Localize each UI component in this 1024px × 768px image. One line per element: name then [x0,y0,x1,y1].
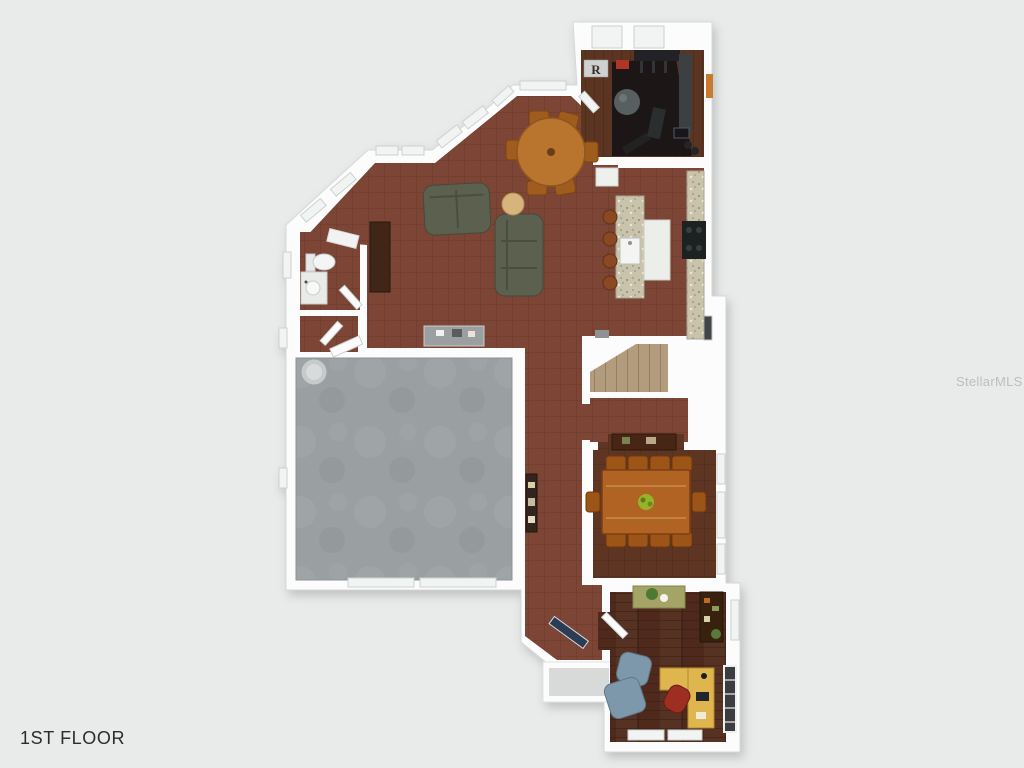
rack-bar-2 [652,61,655,73]
dining-chair-left [586,492,600,512]
loveseat [423,182,492,235]
office-bottom-window-1 [628,730,664,740]
sofa-body [495,214,543,296]
water-heater-top [306,364,322,380]
console-item-2 [452,329,462,337]
stove [682,221,706,259]
weight-rack [634,50,680,61]
office-table-plant [646,588,658,600]
round-side-table [502,193,524,215]
office-side-window [731,600,739,640]
gym-tv [674,128,689,138]
exercise-ball-highlight [619,94,627,102]
office-table-vase [660,594,668,602]
console-item-1 [436,330,444,336]
buffet-item-1 [622,437,630,444]
sofa [495,214,543,296]
garage-wall-pilaster-2 [279,468,287,488]
dining-chair-right [692,492,706,512]
red-equipment [616,60,629,69]
gym-sign-letter: R [591,62,601,77]
stair-closet-window [704,316,712,340]
desk-papers [696,712,706,719]
kettlebell-2 [691,147,699,155]
hall-console-item-1 [528,482,535,488]
desk-lamp [701,673,707,679]
vanity-sink [306,281,320,295]
sink-faucet [628,241,632,245]
cable-machine [679,54,692,134]
bookshelf-item-2 [712,606,719,611]
garage [301,359,327,385]
bar-stool-2 [603,232,617,246]
burner-1 [686,227,692,233]
bookshelf-item-1 [704,598,710,603]
garage-floor [296,358,512,580]
console-item-3 [468,331,475,337]
living-window-2 [402,146,424,155]
exercise-ball [614,89,640,115]
dining-chair-top-4 [672,456,692,471]
buffet-item-2 [646,437,656,444]
dining-window-3 [717,544,725,574]
gym-window-left [592,26,622,48]
burner-3 [686,245,692,251]
office-side-table [633,586,685,608]
building: R [279,22,740,752]
watermark: StellarMLS [956,374,1023,389]
centerpiece-leaf-1 [641,498,646,503]
hallway [526,474,537,532]
hall-connector [578,404,594,440]
nook-chair-4 [584,142,598,162]
vanity-faucet [305,281,308,284]
living-window-1 [376,146,398,155]
hall-console-item-2 [528,498,535,506]
rack-bar-3 [664,61,667,73]
garage-door-opening-2 [420,578,496,587]
bookshelf-item-3 [704,616,710,622]
stair-landing-item [595,330,609,338]
bar-stool-4 [603,276,617,290]
gym-window-right [634,26,664,48]
tv-console [370,222,390,292]
powder-window [283,252,291,278]
office-bottom-window-2 [668,730,702,740]
kitchen-cabinet-top [596,168,618,186]
garage-door-opening-1 [348,578,414,587]
dining-chair-top-3 [650,456,670,471]
dining-chair-top-1 [606,456,626,471]
kettlebell-1 [684,141,692,149]
bar-stool-3 [603,254,617,268]
dining-chair-top-2 [628,456,648,471]
floor-plan-page: R [0,0,1024,768]
dining-window-2 [717,492,725,538]
burner-4 [696,245,702,251]
gym-side-door [706,74,713,98]
buffet [612,434,676,450]
centerpiece-leaf-2 [648,502,653,507]
bar-stool-1 [603,210,617,224]
toilet-bowl [313,254,335,270]
porch-step [549,668,609,696]
front-porch [543,662,615,702]
rack-bar-1 [640,61,643,73]
floor-label: 1ST FLOOR [20,728,125,749]
nook-bay-window-top [520,81,566,90]
island-white-counter [644,220,670,280]
dining-centerpiece [638,494,654,510]
garage-wall-pilaster-1 [279,328,287,348]
nook-table-center [547,148,555,156]
bookshelf-plant [711,629,721,639]
burner-2 [696,227,702,233]
laptop [696,692,709,701]
hall-console-item-3 [528,516,535,523]
floor-plan-rendering: R [0,0,1024,768]
dining-window-1 [717,454,725,484]
